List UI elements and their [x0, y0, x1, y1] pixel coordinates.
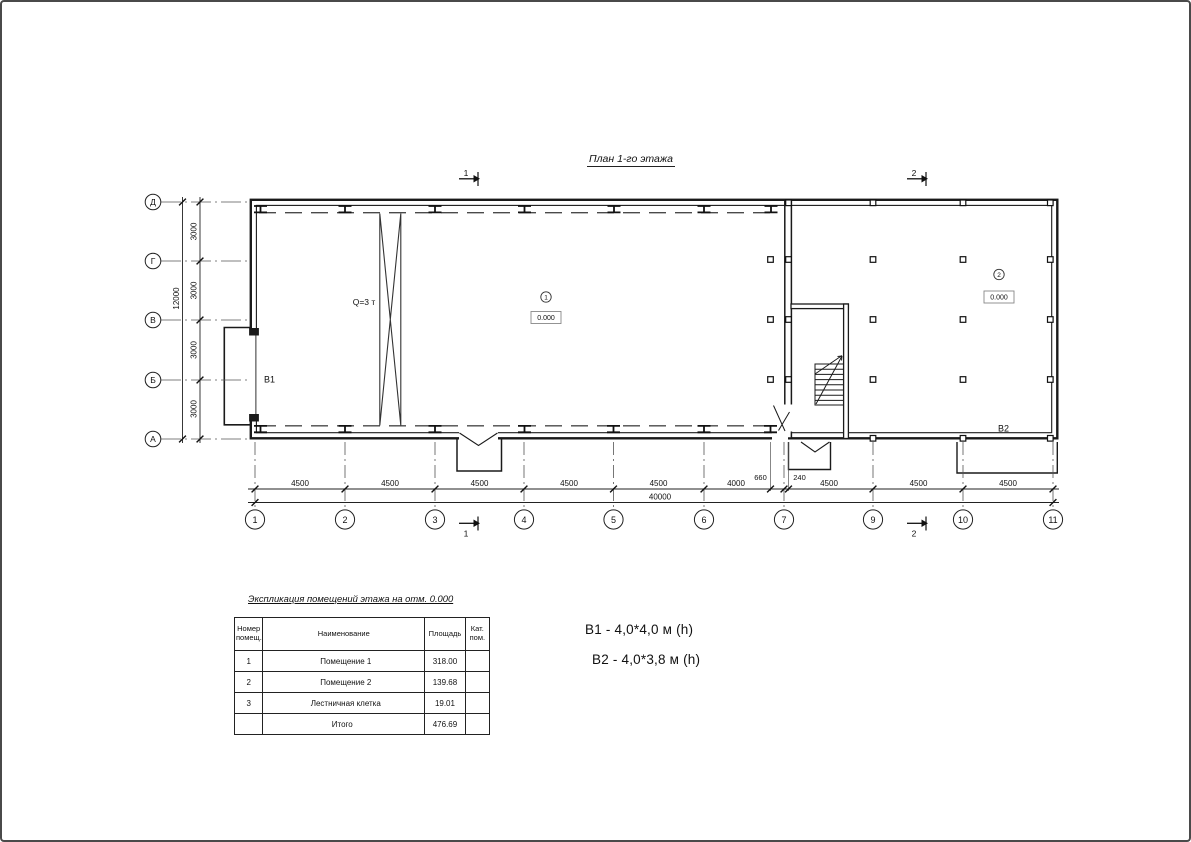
dim-label: 4500 — [910, 479, 928, 488]
dim-label: 4500 — [560, 479, 578, 488]
section-mark-1-top — [459, 172, 480, 186]
axis-bottom-label: 9 — [870, 515, 875, 525]
room1-number: 1 — [544, 294, 548, 301]
section-mark-2-top — [907, 172, 928, 186]
dim-label: 4500 — [291, 479, 309, 488]
cell-area: 318.00 — [425, 651, 465, 672]
dim-label: 4500 — [820, 479, 838, 488]
dim-label: 3000 — [190, 281, 199, 299]
drawing-title: План 1-го этажа — [587, 153, 675, 167]
dim-label: 4000 — [727, 479, 745, 488]
note-b1: В1 - 4,0*4,0 м (h) — [585, 622, 693, 637]
axis-left-label: В — [150, 315, 156, 325]
dim-label: 4500 — [381, 479, 399, 488]
cell-number: 3 — [235, 693, 263, 714]
axis-bottom-label: 4 — [521, 515, 526, 525]
axis-bottom-label: 6 — [701, 515, 706, 525]
table-row: 2 Помещение 2 139.68 — [235, 672, 490, 693]
axis-bottom-label: 5 — [611, 515, 616, 525]
room-schedule-title: Экспликация помещений этажа на отм. 0.00… — [248, 593, 492, 604]
cell-empty — [465, 714, 489, 735]
dim-label-240: 240 — [793, 473, 806, 482]
axis-bottom-label: 1 — [252, 515, 257, 525]
axis-bottom-label: 3 — [432, 515, 437, 525]
col-header-area: Площадь — [425, 618, 465, 651]
axis-bottom-label: 7 — [781, 515, 786, 525]
cell-number: 1 — [235, 651, 263, 672]
table-total-row: Итого 476.69 — [235, 714, 490, 735]
drawing-sheet: Д Г В Б А 1 2 3 4 5 6 7 9 10 11 4500 450… — [0, 0, 1191, 842]
col-header-category: Кат. пом. — [465, 618, 489, 651]
room-schedule: Экспликация помещений этажа на отм. 0.00… — [234, 593, 492, 735]
dim-label: 4500 — [999, 479, 1017, 488]
cell-name: Лестничная клетка — [263, 693, 425, 714]
building-walls — [251, 200, 1058, 438]
cell-category — [465, 693, 489, 714]
table-row: 1 Помещение 1 318.00 — [235, 651, 490, 672]
axis-bottom-label: 11 — [1048, 515, 1057, 525]
cell-name: Помещение 1 — [263, 651, 425, 672]
axis-left-label: Д — [150, 197, 156, 207]
gate-b1-label: В1 — [264, 375, 275, 385]
gate-b2-label: В2 — [998, 424, 1009, 434]
dim-label: 4500 — [650, 479, 668, 488]
dim-label: 4500 — [471, 479, 489, 488]
dim-label: 3000 — [190, 222, 199, 240]
axis-left-label: А — [150, 434, 156, 444]
section-label-2-bottom: 2 — [912, 529, 917, 539]
axis-left-label: Г — [151, 256, 156, 266]
note-b2: В2 - 4,0*3,8 м (h) — [592, 652, 700, 667]
dim-label: 3000 — [190, 400, 199, 418]
dim-total-left: 12000 — [172, 287, 181, 310]
cell-number: 2 — [235, 672, 263, 693]
axis-left-label: Б — [150, 375, 156, 385]
section-mark-1-bottom — [459, 517, 480, 531]
axis-bottom-label: 2 — [342, 515, 347, 525]
cell-category — [465, 672, 489, 693]
cell-name: Помещение 2 — [263, 672, 425, 693]
dim-label: 3000 — [190, 341, 199, 359]
crane-capacity-label: Q=3 т — [353, 297, 376, 307]
room-schedule-table: Номер помещ. Наименование Площадь Кат. п… — [234, 617, 490, 735]
section-label-2-top: 2 — [912, 168, 917, 178]
room1-level: 0.000 — [537, 315, 555, 322]
section-label-1-top: 1 — [464, 168, 469, 178]
cell-total-value: 476.69 — [425, 714, 465, 735]
cell-area: 19.01 — [425, 693, 465, 714]
cell-empty — [235, 714, 263, 735]
dim-label-660: 660 — [754, 473, 767, 482]
axis-bottom-label: 10 — [958, 515, 968, 525]
entrance-porch-2 — [789, 442, 831, 470]
room2-number: 2 — [997, 272, 1001, 279]
room2-level: 0.000 — [990, 295, 1008, 302]
col-header-name: Наименование — [263, 618, 425, 651]
floor-plan-drawing: Д Г В Б А 1 2 3 4 5 6 7 9 10 11 4500 450… — [2, 2, 1189, 840]
cell-total-label: Итого — [263, 714, 425, 735]
table-row: 3 Лестничная клетка 19.01 — [235, 693, 490, 714]
section-label-1-bottom: 1 — [464, 529, 469, 539]
section-mark-2-bottom — [907, 517, 928, 531]
dock-b2 — [957, 442, 1057, 473]
cell-category — [465, 651, 489, 672]
dim-total-bottom: 40000 — [649, 493, 672, 502]
col-header-number: Номер помещ. — [235, 618, 263, 651]
cell-area: 139.68 — [425, 672, 465, 693]
table-header-row: Номер помещ. Наименование Площадь Кат. п… — [235, 618, 490, 651]
